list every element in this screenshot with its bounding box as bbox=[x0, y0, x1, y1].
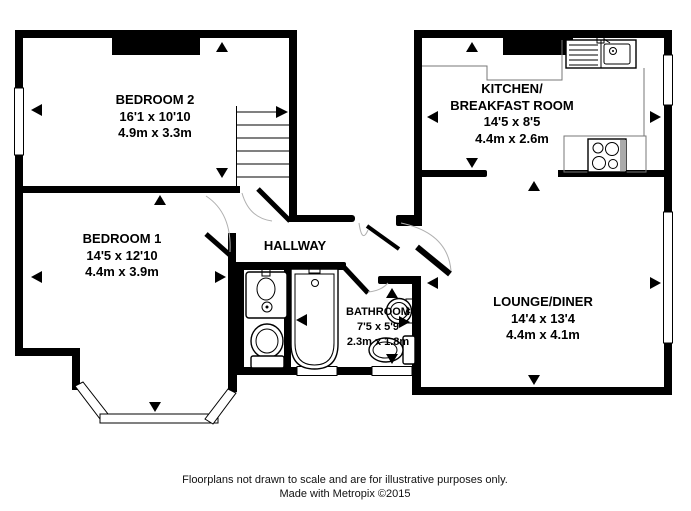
lounge-label: LOUNGE/DINER 14'4 x 13'4 4.4m x 4.1m bbox=[493, 294, 593, 344]
door-leaf-bedroom1 bbox=[206, 234, 231, 256]
chimney-breast-bedroom2 bbox=[112, 38, 200, 55]
measure-arrow-up-icon bbox=[216, 42, 228, 52]
room-dims-imperial: 16'1 x 10'10 bbox=[116, 109, 195, 126]
measure-arrow-right-icon bbox=[650, 277, 661, 289]
door-leaf-stairs bbox=[258, 189, 290, 221]
measure-arrow-down-icon bbox=[216, 168, 228, 178]
measure-arrow-up-icon bbox=[154, 195, 166, 205]
measure-arrow-left-icon bbox=[427, 111, 438, 123]
measure-arrow-right-icon bbox=[650, 111, 661, 123]
stairs-direction-arrow-icon bbox=[276, 106, 288, 118]
room-dims-metric: 4.4m x 3.9m bbox=[83, 264, 162, 281]
credit-text: Made with Metropix ©2015 bbox=[182, 487, 508, 501]
room-name: BREAKFAST ROOM bbox=[450, 98, 574, 115]
window-lounge bbox=[664, 212, 673, 343]
kitchen-sink-icon bbox=[566, 36, 636, 68]
toilet-icon-cloakroom bbox=[251, 324, 284, 368]
hob-icon bbox=[588, 139, 626, 172]
measure-arrow-left-icon bbox=[427, 277, 438, 289]
room-dims-metric: 4.4m x 2.6m bbox=[450, 131, 574, 148]
measure-arrow-down-icon bbox=[466, 158, 478, 168]
door-leaf-hallway bbox=[367, 226, 399, 249]
room-name: BEDROOM 1 bbox=[83, 231, 162, 248]
stairs bbox=[237, 106, 290, 193]
bath-icon bbox=[291, 265, 338, 369]
room-dims-metric: 4.4m x 4.1m bbox=[493, 327, 593, 344]
measure-arrow-left-icon bbox=[31, 104, 42, 116]
hallway-label: HALLWAY bbox=[264, 238, 326, 255]
room-dims-imperial: 14'4 x 13'4 bbox=[493, 311, 593, 328]
room-name: HALLWAY bbox=[264, 238, 326, 255]
window-kitchen bbox=[664, 55, 673, 105]
room-name: BEDROOM 2 bbox=[116, 92, 195, 109]
disclaimer-text: Floorplans not drawn to scale and are fo… bbox=[182, 473, 508, 487]
room-dims-imperial: 14'5 x 12'10 bbox=[83, 248, 162, 265]
vanity-basin-icon bbox=[246, 269, 287, 318]
measure-arrow-up-icon bbox=[528, 181, 540, 191]
kitchen-label: KITCHEN/ BREAKFAST ROOM 14'5 x 8'5 4.4m … bbox=[450, 81, 574, 147]
footer-disclaimer: Floorplans not drawn to scale and are fo… bbox=[182, 473, 508, 501]
window-bedroom2 bbox=[15, 88, 24, 155]
room-dims-metric: 2.3m x 1.8m bbox=[346, 335, 410, 350]
measure-arrow-up-icon bbox=[386, 288, 398, 298]
room-name: KITCHEN/ bbox=[450, 81, 574, 98]
window-bathroom-right bbox=[372, 367, 412, 376]
measure-arrow-right-icon bbox=[215, 271, 226, 283]
room-name: BATHROOM bbox=[346, 305, 410, 320]
room-name: LOUNGE/DINER bbox=[493, 294, 593, 311]
floorplan: BEDROOM 2 16'1 x 10'10 4.9m x 3.3m BEDRO… bbox=[0, 0, 691, 511]
room-dims-imperial: 14'5 x 8'5 bbox=[450, 114, 574, 131]
measure-arrow-down-icon bbox=[528, 375, 540, 385]
room-dims-imperial: 7'5 x 5'9 bbox=[346, 320, 410, 335]
measure-arrow-up-icon bbox=[466, 42, 478, 52]
bedroom1-label: BEDROOM 1 14'5 x 12'10 4.4m x 3.9m bbox=[83, 231, 162, 281]
door-leaf-bathroom bbox=[341, 264, 368, 293]
bathroom-label: BATHROOM 7'5 x 5'9 2.3m x 1.8m bbox=[346, 305, 410, 350]
bedroom2-label: BEDROOM 2 16'1 x 10'10 4.9m x 3.3m bbox=[116, 92, 195, 142]
measure-arrow-down-icon bbox=[149, 402, 161, 412]
measure-arrow-left-icon bbox=[31, 271, 42, 283]
room-dims-metric: 4.9m x 3.3m bbox=[116, 125, 195, 142]
